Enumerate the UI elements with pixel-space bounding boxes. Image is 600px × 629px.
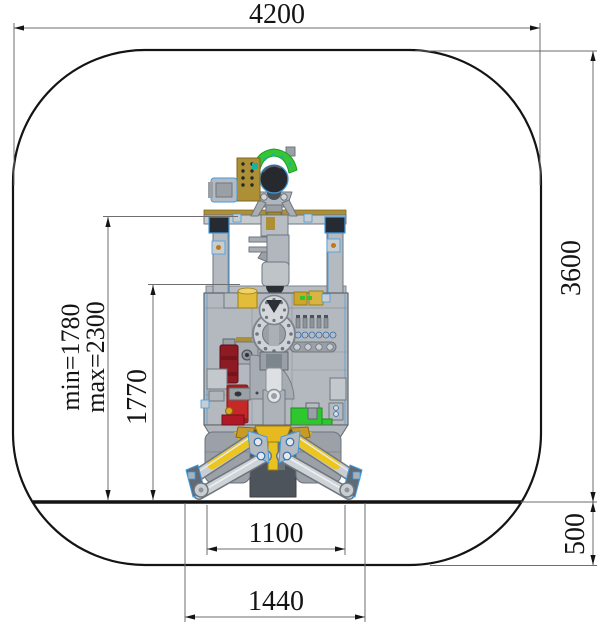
dim-tunnel-height: 3600 <box>415 51 597 502</box>
dim-label-1770: 1770 <box>122 369 153 425</box>
dim-label-500: 500 <box>560 513 591 555</box>
technical-drawing: 4200 3600 500 min=1780 max=2300 1770 <box>0 0 600 629</box>
dim-track-gauge: 1100 <box>207 505 345 555</box>
dim-label-max-height: max=2300 <box>81 301 110 412</box>
central-mast <box>249 215 289 295</box>
dim-label-4200: 4200 <box>249 0 305 30</box>
dim-invert-depth: 500 <box>560 502 596 565</box>
dim-label-3600: 3600 <box>556 240 587 296</box>
red-chassis-block <box>222 415 244 425</box>
drawing-svg: 4200 3600 500 min=1780 max=2300 1770 <box>0 0 600 629</box>
dim-label-1100: 1100 <box>249 518 304 549</box>
dim-label-1440: 1440 <box>248 586 304 617</box>
dim-tunnel-width: 4200 <box>14 0 540 185</box>
drilling-robot <box>186 147 362 497</box>
